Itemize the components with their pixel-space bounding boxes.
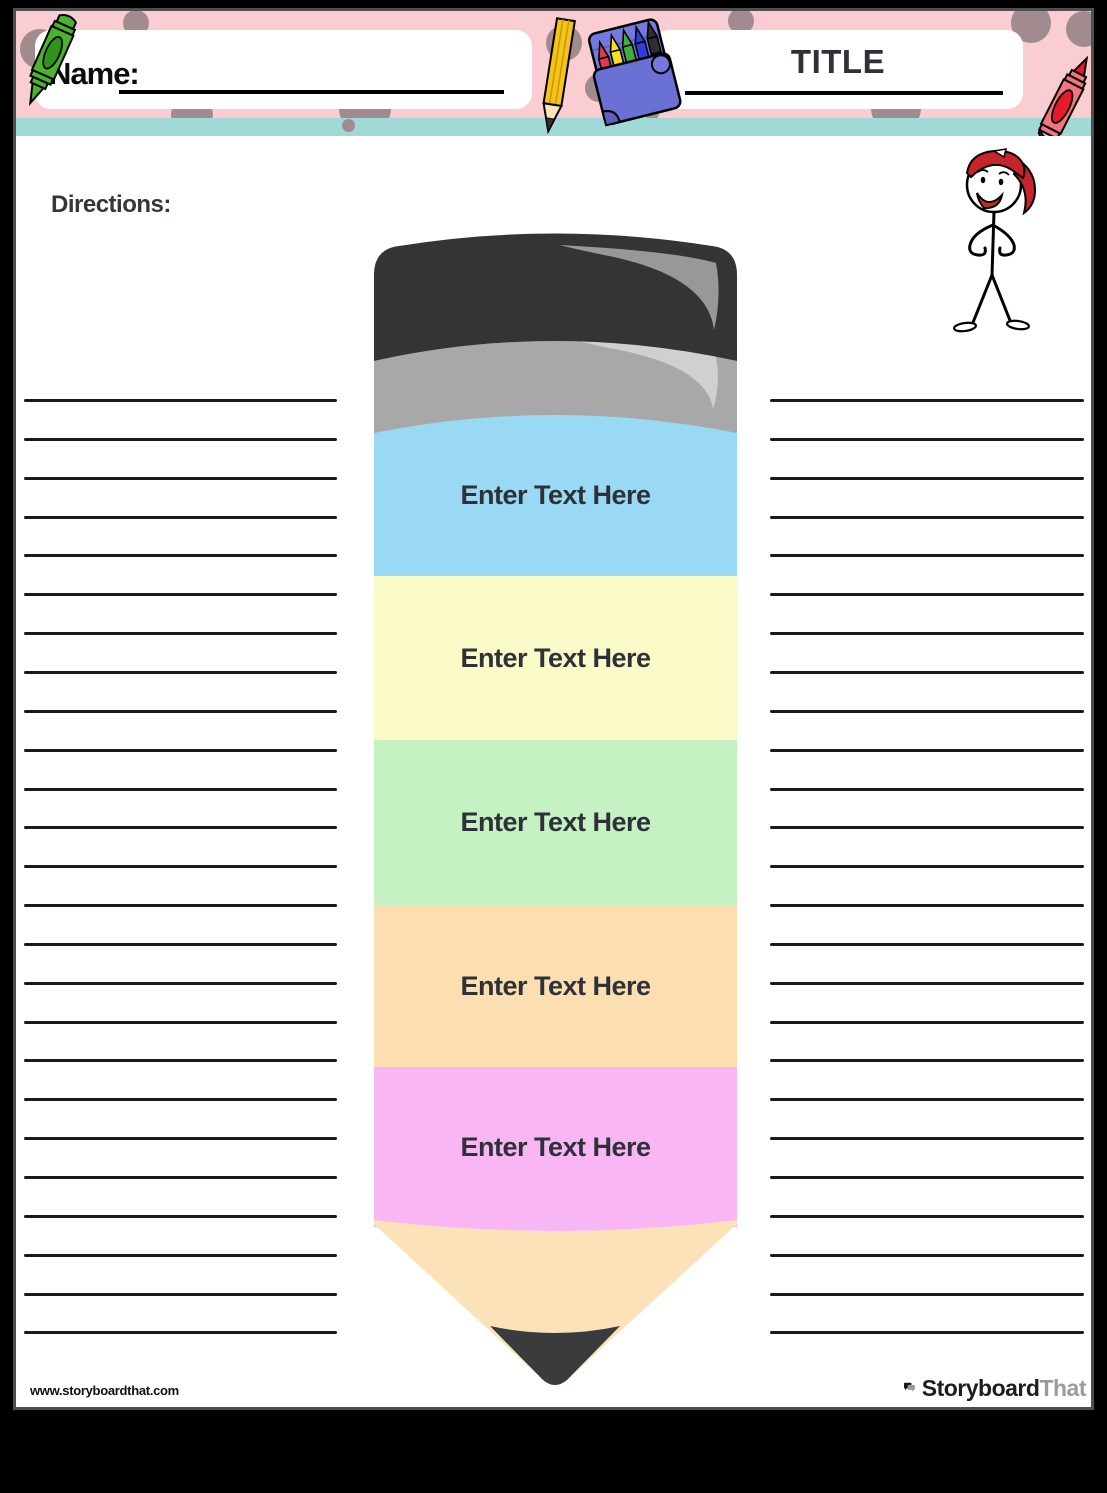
writing-line <box>24 865 337 868</box>
writing-line <box>24 1254 337 1257</box>
pencil-section-5: Enter Text Here <box>374 1067 737 1227</box>
writing-line <box>24 1021 337 1024</box>
writing-line <box>24 671 337 674</box>
writing-line <box>24 632 337 635</box>
writing-line <box>770 1021 1084 1024</box>
writing-line <box>770 593 1084 596</box>
writing-line <box>24 1176 337 1179</box>
logo-text-secondary: That <box>1039 1375 1086 1401</box>
writing-line <box>770 1254 1084 1257</box>
writing-line <box>24 554 337 557</box>
logo-text-primary: Storyboard <box>922 1375 1040 1401</box>
directions-label: Directions: <box>51 191 171 219</box>
writing-line <box>770 477 1084 480</box>
writing-line <box>24 943 337 946</box>
green-crayon-icon <box>16 11 82 115</box>
logo-text: StoryboardThat <box>922 1375 1086 1402</box>
writing-line <box>24 1137 337 1140</box>
speech-bubbles-icon <box>904 1371 916 1405</box>
writing-line <box>770 1331 1084 1334</box>
writing-line <box>24 1293 337 1296</box>
section-label[interactable]: Enter Text Here <box>460 643 650 674</box>
writing-line <box>24 710 337 713</box>
writing-line <box>24 516 337 519</box>
writing-line <box>770 399 1084 402</box>
pencil-section-2: Enter Text Here <box>374 576 737 740</box>
pencil-organizer: Enter Text Here Enter Text Here Enter Te… <box>374 11 737 1407</box>
section-label[interactable]: Enter Text Here <box>460 807 650 838</box>
writing-line <box>24 438 337 441</box>
writing-line <box>770 749 1084 752</box>
writing-line <box>770 982 1084 985</box>
writing-line <box>770 788 1084 791</box>
writing-line <box>24 1098 337 1101</box>
writing-line <box>770 1215 1084 1218</box>
writing-line <box>24 1059 337 1062</box>
writing-line <box>24 399 337 402</box>
writing-line <box>24 749 337 752</box>
writing-line <box>770 904 1084 907</box>
section-label[interactable]: Enter Text Here <box>460 1132 650 1163</box>
writing-line <box>770 1176 1084 1179</box>
section-label[interactable]: Enter Text Here <box>460 971 650 1002</box>
writing-line <box>770 710 1084 713</box>
writing-line <box>770 943 1084 946</box>
pencil-tip <box>374 1208 737 1395</box>
writing-line <box>770 826 1084 829</box>
storyboardthat-logo: StoryboardThat <box>904 1369 1086 1407</box>
writing-line <box>770 438 1084 441</box>
writing-line <box>770 1137 1084 1140</box>
pencil-section-1: Enter Text Here <box>374 415 737 576</box>
writing-line <box>770 1098 1084 1101</box>
writing-line <box>770 671 1084 674</box>
writing-line <box>24 826 337 829</box>
writing-line <box>770 1059 1084 1062</box>
footer-url: www.storyboardthat.com <box>30 1383 179 1398</box>
stick-figure-red-cap-icon <box>950 145 1042 337</box>
writing-line <box>24 1331 337 1334</box>
writing-line <box>770 1293 1084 1296</box>
pencil-cap <box>374 233 737 433</box>
red-crayon-icon <box>1024 51 1091 136</box>
writing-line <box>770 632 1084 635</box>
writing-line <box>770 865 1084 868</box>
section-label[interactable]: Enter Text Here <box>460 480 650 511</box>
writing-line <box>24 788 337 791</box>
writing-line <box>24 1215 337 1218</box>
writing-line <box>24 982 337 985</box>
pencil-section-4: Enter Text Here <box>374 905 737 1067</box>
writing-line <box>24 593 337 596</box>
writing-line <box>770 516 1084 519</box>
writing-line <box>24 477 337 480</box>
polka-dot <box>342 119 355 132</box>
worksheet-page: Name: TITLE <box>13 8 1094 1410</box>
writing-line <box>770 554 1084 557</box>
pencil-section-3: Enter Text Here <box>374 740 737 905</box>
writing-line <box>24 904 337 907</box>
